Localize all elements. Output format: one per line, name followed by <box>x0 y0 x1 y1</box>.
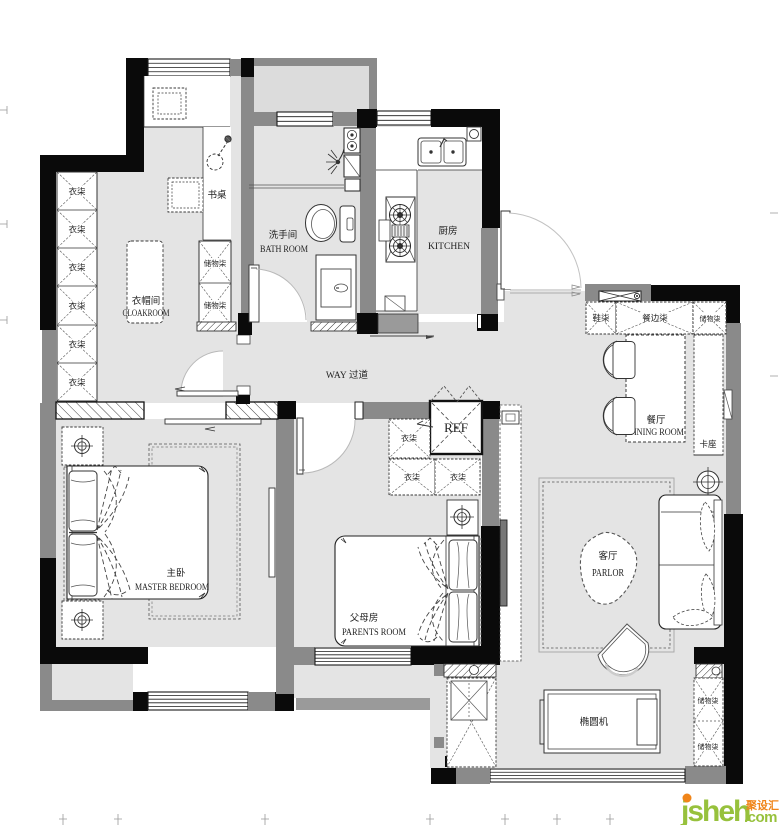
svg-text:衣柒: 衣柒 <box>68 263 86 273</box>
svg-text:衣柒: 衣柒 <box>68 340 86 350</box>
svg-text:储物柒: 储物柒 <box>700 314 721 323</box>
svg-text:储物柒: 储物柒 <box>698 696 719 705</box>
svg-text:衣柒: 衣柒 <box>68 301 86 311</box>
svg-text:洗手间: 洗手间 <box>269 229 298 241</box>
svg-text:KITCHEN: KITCHEN <box>428 242 470 252</box>
svg-text:鞋柒: 鞋柒 <box>592 313 610 323</box>
svg-text:PARLOR: PARLOR <box>592 568 624 579</box>
svg-text:衣柒: 衣柒 <box>401 433 417 443</box>
svg-text:衣柒: 衣柒 <box>68 378 86 388</box>
svg-text:PARENTS ROOM: PARENTS ROOM <box>342 628 406 638</box>
svg-text:衣柒: 衣柒 <box>68 187 86 197</box>
svg-text:WAY 过道: WAY 过道 <box>326 369 369 381</box>
svg-text:储物柒: 储物柒 <box>698 742 719 751</box>
svg-text:主卧: 主卧 <box>166 567 186 579</box>
svg-text:储物柒: 储物柒 <box>204 258 227 268</box>
svg-text:衣帽间: 衣帽间 <box>132 295 161 307</box>
svg-text:BATH ROOM: BATH ROOM <box>260 245 308 255</box>
svg-text:卡座: 卡座 <box>699 439 717 449</box>
svg-text:客厅: 客厅 <box>598 550 618 562</box>
svg-text:.com: .com <box>744 809 777 825</box>
svg-text:椭圆机: 椭圆机 <box>580 716 609 728</box>
svg-text:餐边柒: 餐边柒 <box>642 313 668 323</box>
svg-text:衣柒: 衣柒 <box>404 472 420 482</box>
svg-text:餐厅: 餐厅 <box>646 414 666 426</box>
svg-text:REF: REF <box>444 420 468 435</box>
svg-text:父母房: 父母房 <box>350 612 379 624</box>
svg-text:衣柒: 衣柒 <box>450 472 466 482</box>
svg-text:储物柒: 储物柒 <box>204 300 227 310</box>
svg-text:衣柒: 衣柒 <box>68 225 86 235</box>
svg-text:厨房: 厨房 <box>438 225 457 237</box>
svg-text:MASTER BEDROOM: MASTER BEDROOM <box>135 583 209 593</box>
svg-text:CLOAKROOM: CLOAKROOM <box>123 309 170 319</box>
svg-text:书桌: 书桌 <box>207 189 227 201</box>
svg-text:DINING ROOM: DINING ROOM <box>628 428 684 438</box>
